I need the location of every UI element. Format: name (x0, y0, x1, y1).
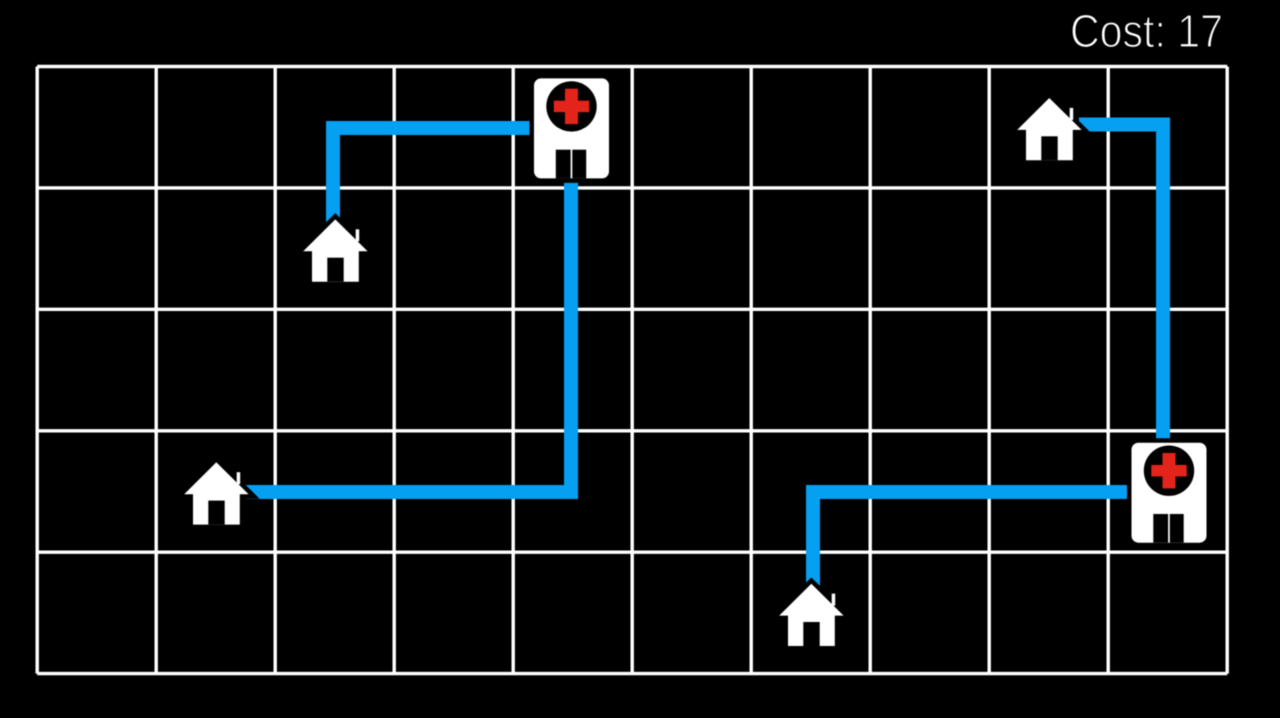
svg-text:Cost: 17: Cost: 17 (1070, 5, 1223, 57)
